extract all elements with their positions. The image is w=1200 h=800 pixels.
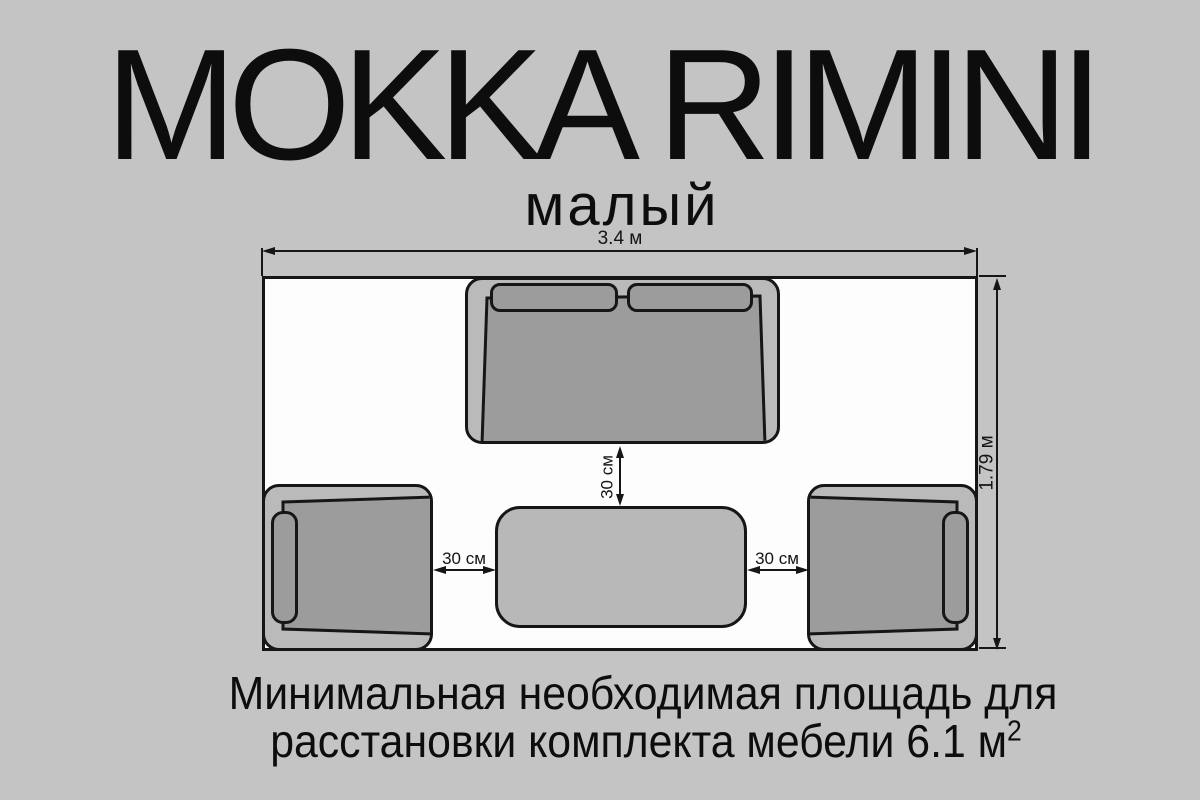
depth-dim-extension-top xyxy=(979,275,1006,277)
right-gap-line xyxy=(759,569,796,571)
right-gap-label: 30 см xyxy=(755,550,799,567)
size-variant-label: малый xyxy=(524,177,719,235)
coffee-table xyxy=(495,506,747,628)
sofa-table-gap-arrow-up-icon xyxy=(616,446,624,458)
width-dim-arrow-left-icon xyxy=(262,247,275,255)
left-gap-line xyxy=(445,569,483,571)
armchair-right xyxy=(807,484,978,651)
armchair-left-back-cushion xyxy=(271,511,298,624)
armchair-left xyxy=(262,484,433,651)
page-title: MOKKA RIMINI xyxy=(0,26,1200,184)
width-dim-arrow-right-icon xyxy=(964,247,977,255)
caption-line-1: Минимальная необходимая площадь для xyxy=(229,668,1058,718)
sofa-back-cushion-right xyxy=(627,283,753,312)
depth-dim-arrow-up-icon xyxy=(993,278,1001,290)
sofa xyxy=(465,277,780,444)
width-dim-line xyxy=(275,250,965,252)
depth-dim-label: 1.79 м xyxy=(978,435,997,490)
caption-superscript: 2 xyxy=(1007,716,1022,748)
sofa-back-cushion-left xyxy=(490,283,618,312)
poster: MOKKA RIMINI малый 3.4 м 1.79 м xyxy=(0,0,1200,800)
depth-dim-arrow-down-icon xyxy=(993,638,1001,650)
sofa-table-gap-label: 30 см xyxy=(599,455,616,499)
sofa-table-gap-line xyxy=(619,458,621,494)
left-gap-label: 30 см xyxy=(442,550,486,567)
caption-line-2-text: расстановки комплекта мебели 6.1 м xyxy=(270,715,1007,767)
sofa-table-gap-arrow-down-icon xyxy=(616,494,624,506)
caption-line-2: расстановки комплекта мебели 6.1 м2 xyxy=(270,716,1022,766)
armchair-right-back-cushion xyxy=(942,511,969,624)
width-dim-label: 3.4 м xyxy=(598,229,643,248)
